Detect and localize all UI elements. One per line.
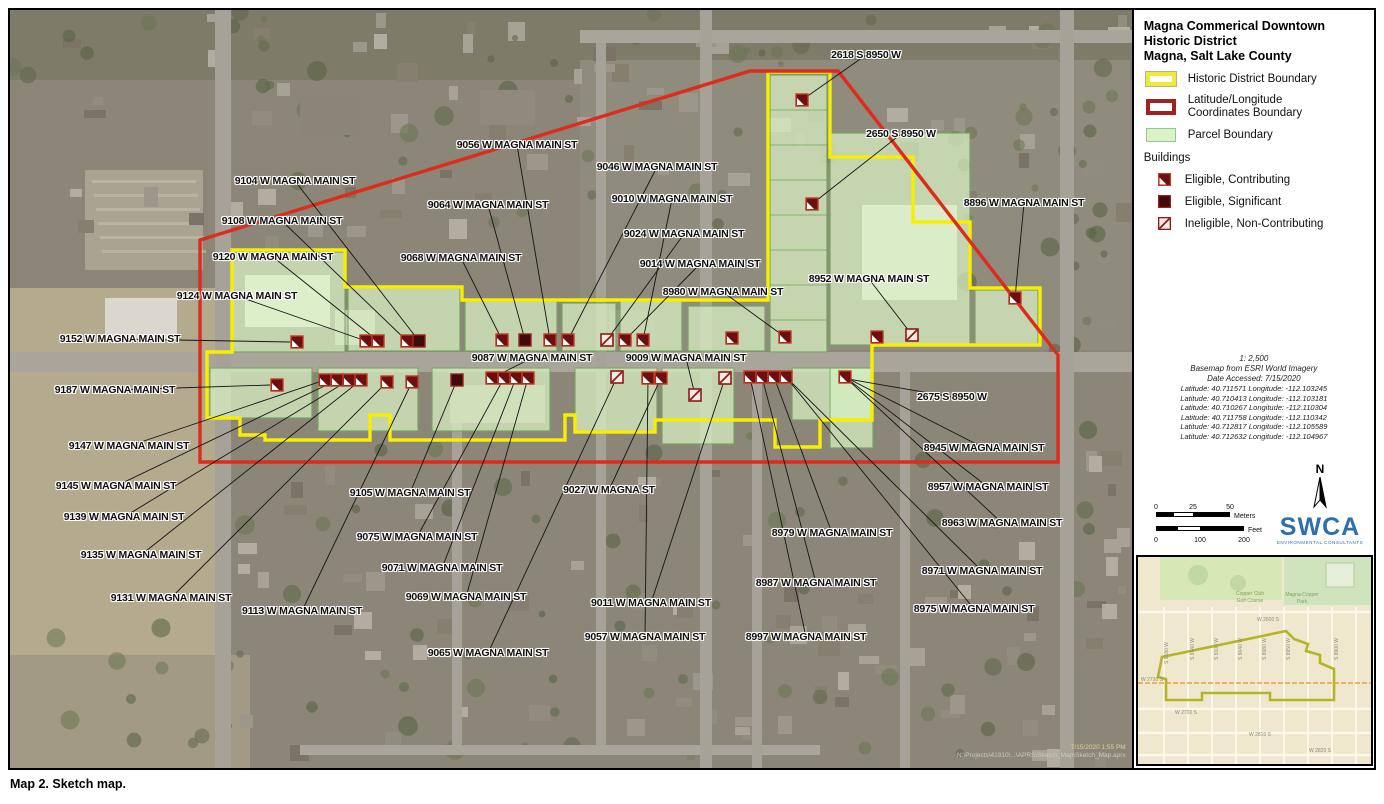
latlong-boundary-swatch	[1146, 99, 1176, 115]
scale-bar-svg: 0 25 50 Meters Feet 0 100 200	[1144, 500, 1274, 552]
significant-marker-icon	[1158, 195, 1171, 208]
buildings-header: Buildings	[1144, 152, 1366, 164]
legend-item-eligible-significant: Eligible, Significant	[1158, 195, 1366, 208]
building-marker	[401, 335, 413, 347]
legend-label: Eligible, Significant	[1185, 196, 1282, 208]
basemap-credit: Basemap from ESRI World Imagery	[1134, 364, 1374, 374]
coordinate-line: Latitude: 40.710267 Longitude: -112.1103…	[1134, 403, 1374, 413]
building-marker	[360, 335, 372, 347]
coordinate-line: Latitude: 40.711758 Longitude: -112.1103…	[1134, 413, 1374, 423]
noncontributing-marker-icon	[1158, 217, 1171, 230]
building-marker	[1009, 292, 1021, 304]
svg-text:Feet: Feet	[1248, 527, 1262, 534]
building-marker	[611, 371, 623, 383]
building-marker	[355, 374, 367, 386]
building-marker	[906, 329, 918, 341]
building-marker	[522, 372, 534, 384]
building-marker	[510, 372, 522, 384]
svg-text:50: 50	[1226, 504, 1234, 511]
inset-area-label: Park	[1297, 599, 1308, 605]
building-marker	[796, 94, 808, 106]
building-marker	[498, 372, 510, 384]
scale-ratio: 1: 2,500	[1134, 354, 1374, 364]
legend-label: Eligible, Contributing	[1185, 174, 1290, 186]
building-marker	[619, 334, 631, 346]
stamp-path: N:\Projects\41910\...\APRS\Sketch_Map\Sk…	[957, 752, 1126, 760]
building-marker	[291, 336, 303, 348]
inset-street-label: W 2820 S	[1309, 748, 1332, 754]
inset-street-label: W 2810 S	[1249, 732, 1272, 738]
contributing-marker-icon	[1158, 173, 1171, 186]
building-marker	[756, 371, 768, 383]
building-marker	[689, 389, 701, 401]
building-marker	[343, 374, 355, 386]
coordinate-line: Latitude: 40.710413 Longitude: -112.1031…	[1134, 394, 1374, 404]
scale-bars: 0 25 50 Meters Feet 0 100 200	[1144, 500, 1274, 554]
building-marker	[744, 371, 756, 383]
inset-street-label: S 8900 W	[1334, 638, 1340, 660]
building-marker	[726, 332, 738, 344]
building-marker	[768, 371, 780, 383]
legend-label: Latitude/Longitude Coordinates Boundary	[1188, 94, 1302, 120]
inset-street-label: W 2730 S	[1141, 677, 1164, 683]
north-and-logo: N SWCA ENVIRONMENTAL CONSULTANTS	[1272, 462, 1368, 545]
inset-street-label: W 2600 S	[1257, 617, 1280, 623]
inset-street-label: S 8980 W	[1262, 638, 1268, 660]
building-marker	[839, 371, 851, 383]
svg-text:0: 0	[1154, 504, 1158, 511]
legend-label: Historic District Boundary	[1188, 73, 1317, 86]
inset-area-label: Copper Club	[1236, 591, 1264, 597]
sketch-map-figure: 2618 S 8950 W2650 S 8950 W9056 W MAGNA M…	[0, 0, 1384, 804]
building-marker	[486, 372, 498, 384]
map-title: Magna Commerical DowntownHistoric Distri…	[1144, 19, 1366, 64]
figure-caption: Map 2. Sketch map.	[10, 777, 126, 791]
svg-text:25: 25	[1189, 504, 1197, 511]
building-marker	[372, 335, 384, 347]
map-frame: 2618 S 8950 W2650 S 8950 W9056 W MAGNA M…	[8, 8, 1376, 770]
building-marker	[544, 334, 556, 346]
building-marker	[331, 374, 343, 386]
inset-street-label: S 9140 W	[1190, 638, 1196, 660]
building-marker	[779, 331, 791, 343]
inset-street-label: S 8950 W	[1286, 638, 1292, 660]
inset-street-label: W 2700 S	[1175, 710, 1198, 716]
building-marker	[519, 334, 531, 346]
legend-item-latlong-boundary: Latitude/Longitude Coordinates Boundary	[1146, 94, 1366, 120]
svg-text:0: 0	[1154, 537, 1158, 544]
boundary-coordinates: Latitude: 40.711571 Longitude: -112.1032…	[1134, 384, 1374, 441]
building-marker	[451, 374, 463, 386]
building-marker	[780, 371, 792, 383]
legend-item-historic-boundary: Historic District Boundary	[1146, 72, 1366, 86]
legend-panel: Magna Commerical DowntownHistoric Distri…	[1132, 10, 1374, 768]
building-marker	[413, 335, 425, 347]
map-canvas-svg	[10, 10, 1132, 768]
building-marker	[806, 198, 818, 210]
inset-street-label: S 9040 W	[1238, 638, 1244, 660]
map-stamp: 7/15/2020 1:55 PM N:\Projects\41910\...\…	[957, 744, 1126, 760]
building-marker	[496, 334, 508, 346]
building-marker	[601, 334, 613, 346]
swca-logo-subtext: ENVIRONMENTAL CONSULTANTS	[1272, 540, 1368, 545]
building-marker	[562, 334, 574, 346]
legend-label: Ineligible, Non-Contributing	[1185, 218, 1324, 230]
north-arrow-icon	[1307, 476, 1333, 510]
svg-text:200: 200	[1238, 537, 1250, 544]
building-marker	[406, 376, 418, 388]
svg-text:Meters: Meters	[1234, 513, 1256, 520]
inset-area-label: Magna-Copper	[1285, 592, 1319, 598]
building-marker	[655, 372, 667, 384]
building-marker	[871, 331, 883, 343]
inset-map-svg: Copper ClubGolf CourseMagna-CopperParkW …	[1138, 557, 1371, 764]
legend-item-ineligible-noncontributing: Ineligible, Non-Contributing	[1158, 217, 1366, 230]
legend-item-eligible-contributing: Eligible, Contributing	[1158, 173, 1366, 186]
map-title-line: Magna Commerical Downtown	[1144, 19, 1366, 34]
legend-item-parcel-boundary: Parcel Boundary	[1146, 128, 1366, 142]
swca-logo: SWCA	[1272, 515, 1368, 539]
building-marker	[637, 334, 649, 346]
historic-boundary-swatch	[1146, 72, 1176, 86]
coordinate-line: Latitude: 40.712632 Longitude: -112.1049…	[1134, 432, 1374, 442]
inset-area-label: Golf Course	[1236, 598, 1263, 604]
north-label: N	[1272, 462, 1368, 476]
coordinate-line: Latitude: 40.712817 Longitude: -112.1055…	[1134, 422, 1374, 432]
svg-text:100: 100	[1194, 537, 1206, 544]
inset-street-label: S 9100 W	[1214, 638, 1220, 660]
date-accessed: Date Accessed: 7/15/2020	[1134, 374, 1374, 384]
parcel-boundary-swatch	[1146, 128, 1176, 142]
building-marker	[271, 379, 283, 391]
aerial-map: 2618 S 8950 W2650 S 8950 W9056 W MAGNA M…	[10, 10, 1132, 768]
map-title-line: Magna, Salt Lake County	[1144, 49, 1366, 64]
building-marker	[381, 376, 393, 388]
building-marker	[319, 374, 331, 386]
inset-locator-map: Copper ClubGolf CourseMagna-CopperParkW …	[1136, 555, 1373, 766]
legend-label: Parcel Boundary	[1188, 129, 1273, 142]
scale-info: 1: 2,500 Basemap from ESRI World Imagery…	[1134, 354, 1374, 441]
map-title-line: Historic District	[1144, 34, 1366, 49]
inset-street-label: S 9180 W	[1164, 642, 1170, 664]
coordinate-line: Latitude: 40.711571 Longitude: -112.1032…	[1134, 384, 1374, 394]
building-marker	[642, 372, 654, 384]
stamp-date: 7/15/2020 1:55 PM	[957, 744, 1126, 752]
building-marker	[719, 372, 731, 384]
